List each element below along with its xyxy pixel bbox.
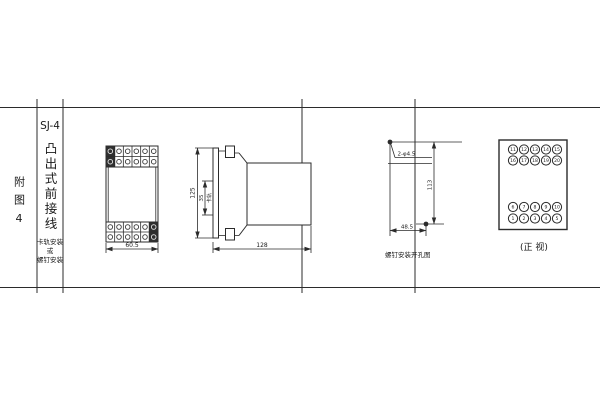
- wiring-type-label: 凸出式前接线: [41, 142, 60, 232]
- side-height-dimension: 125: [190, 187, 197, 199]
- drill-vertical-dimension: 113: [428, 179, 434, 190]
- terminal-number: 19: [543, 158, 549, 164]
- terminal-number: 5: [556, 216, 559, 222]
- rail-label: 卡轨: [206, 193, 213, 203]
- figure-index-label: 附图4: [11, 176, 27, 232]
- terminal-number: 2: [523, 216, 526, 222]
- terminal-number: 7: [523, 205, 526, 211]
- terminal-number: 11: [510, 147, 516, 153]
- terminal-number: 9: [545, 205, 548, 211]
- mount-note-line: 卡轨安装: [28, 238, 72, 247]
- drawing-canvas: 60.5 125 35 卡轨: [0, 0, 600, 400]
- figure-sheet: 60.5 125 35 卡轨: [0, 0, 600, 400]
- terminal-number: 3: [534, 216, 537, 222]
- side-depth-dimension: 128: [256, 242, 268, 249]
- terminal-view-caption: (正 视): [520, 241, 548, 253]
- terminal-number: 15: [554, 147, 560, 153]
- terminal-number: 10: [554, 205, 560, 211]
- terminal-number: 16: [510, 158, 516, 164]
- terminal-number: 20: [554, 158, 560, 164]
- hole-spec-label: 2-φ4.5: [398, 152, 416, 158]
- terminal-number: 1: [512, 216, 515, 222]
- drill-horizontal-dimension: 48.5: [401, 225, 414, 231]
- mount-note-line: 螺钉安装: [28, 256, 72, 265]
- drill-diagram-caption: 螺钉安装开孔图: [385, 250, 431, 259]
- terminal-number: 12: [521, 147, 527, 153]
- terminal-number: 6: [512, 205, 515, 211]
- mount-hole: [388, 140, 393, 145]
- terminal-number: 14: [543, 147, 549, 153]
- index-column: 附图4: [0, 176, 37, 232]
- mount-note-line: 或: [28, 247, 72, 256]
- front-width-dimension: 60.5: [125, 242, 139, 249]
- rail-slot-dimension: 35: [199, 194, 205, 201]
- terminal-number: 17: [521, 158, 527, 164]
- terminal-number: 4: [545, 216, 548, 222]
- type-column: 凸出式前接线: [37, 142, 63, 232]
- mount-note: 卡轨安装 或 螺钉安装: [28, 238, 72, 265]
- terminal-layout-drawing: 11 12 13 14 15 16 17 18 19 20 6 7 8 9: [499, 140, 567, 253]
- terminal-number: 8: [534, 205, 537, 211]
- terminal-number: 13: [532, 147, 538, 153]
- screw-mount-hole-diagram: 2-φ4.5 113 48.5 螺钉安装开孔图: [385, 140, 462, 259]
- terminal-number: 18: [532, 158, 538, 164]
- model-label: SJ-4: [37, 120, 63, 132]
- side-view-drawing: 125 35 卡轨 128: [190, 146, 312, 253]
- front-view-drawing: 60.5: [106, 146, 158, 253]
